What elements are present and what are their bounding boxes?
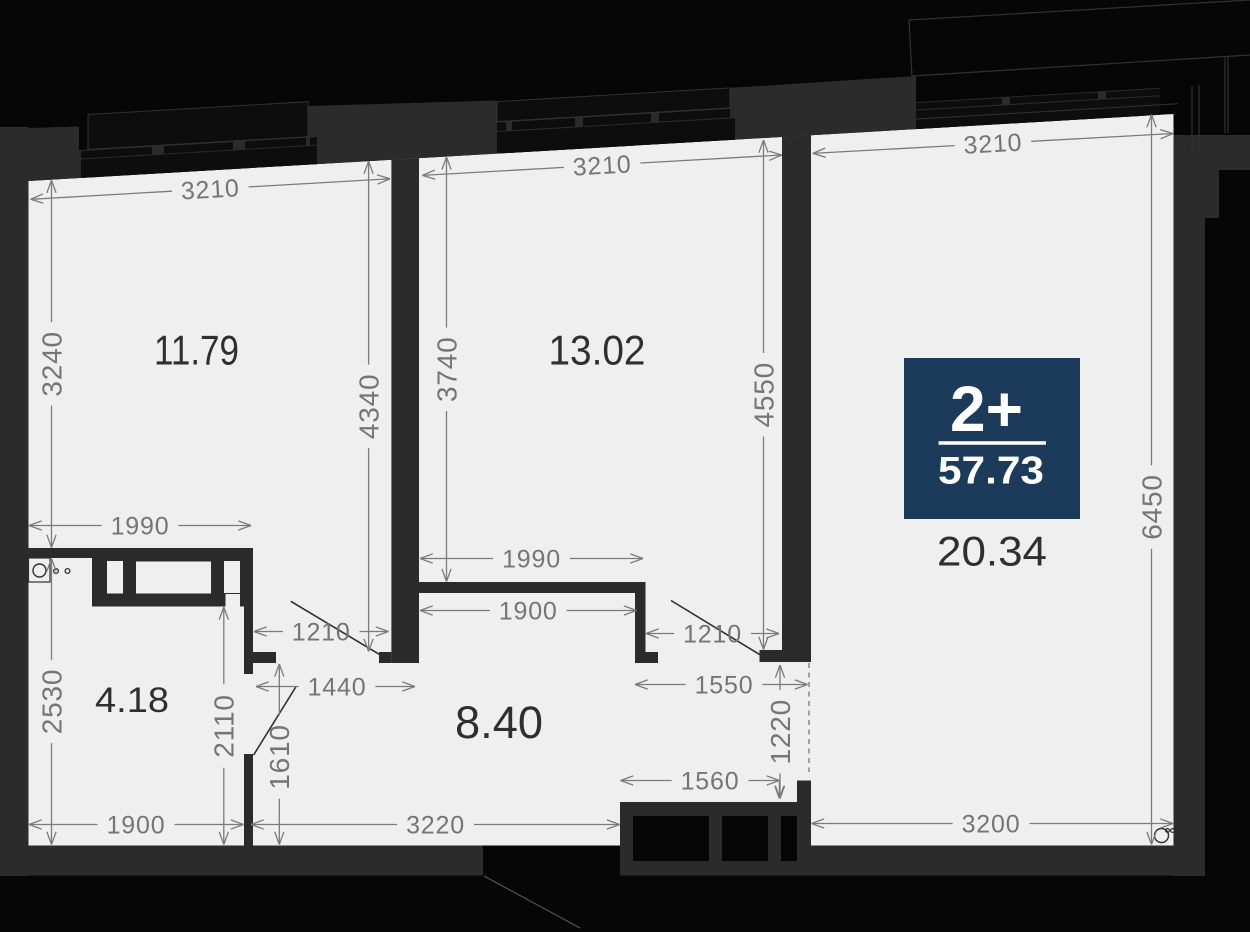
svg-text:3220: 3220 (406, 811, 465, 839)
svg-text:1210: 1210 (292, 618, 351, 646)
svg-text:1210: 1210 (683, 620, 742, 648)
svg-text:3210: 3210 (963, 129, 1023, 160)
svg-text:6450: 6450 (1136, 474, 1167, 540)
svg-text:1990: 1990 (502, 545, 561, 573)
svg-text:4550: 4550 (748, 362, 779, 428)
svg-text:57.73: 57.73 (938, 450, 1044, 493)
svg-text:20.34: 20.34 (937, 528, 1047, 575)
svg-text:2530: 2530 (36, 669, 67, 735)
svg-text:8.40: 8.40 (455, 697, 543, 748)
svg-text:4.18: 4.18 (95, 681, 169, 720)
svg-text:3240: 3240 (36, 331, 67, 397)
svg-text:1550: 1550 (695, 671, 754, 699)
svg-text:1440: 1440 (308, 673, 367, 701)
svg-text:3210: 3210 (180, 174, 240, 205)
svg-text:4340: 4340 (353, 374, 384, 440)
svg-text:1990: 1990 (111, 512, 170, 540)
svg-text:1610: 1610 (264, 724, 295, 790)
svg-text:11.79: 11.79 (154, 327, 239, 374)
svg-text:3210: 3210 (572, 150, 632, 181)
svg-text:1560: 1560 (681, 767, 740, 795)
svg-text:1900: 1900 (107, 811, 166, 839)
svg-text:3740: 3740 (431, 336, 462, 402)
svg-text:1220: 1220 (765, 699, 796, 765)
svg-text:1900: 1900 (499, 597, 558, 625)
svg-text:2110: 2110 (209, 694, 240, 757)
svg-text:3200: 3200 (962, 810, 1021, 838)
svg-text:13.02: 13.02 (549, 327, 646, 374)
svg-text:2+: 2+ (950, 373, 1023, 445)
